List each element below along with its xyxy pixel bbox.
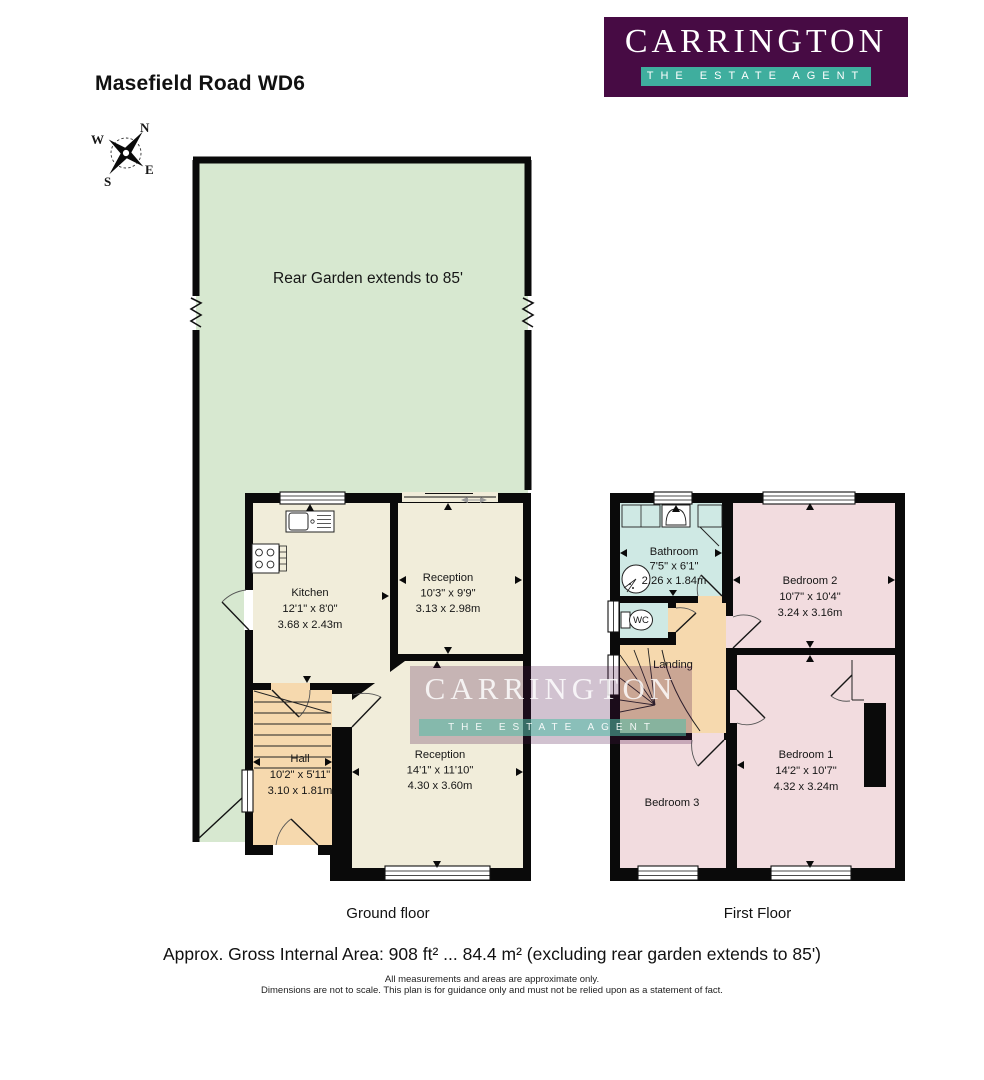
bathroom-size-metric: 2.26 x 1.84m bbox=[642, 575, 707, 587]
reception-front-label: Reception bbox=[415, 749, 465, 761]
window bbox=[608, 601, 619, 632]
bedroom3-label: Bedroom 3 bbox=[645, 797, 700, 809]
compass-east-label: E bbox=[145, 162, 154, 177]
floorplan-page: Masefield Road WD6 CARRINGTON THE ESTATE… bbox=[0, 0, 984, 1080]
basin-icon bbox=[662, 505, 690, 527]
chimney-breast bbox=[864, 703, 886, 787]
sink-icon bbox=[286, 511, 334, 532]
bathroom-label: Bathroom bbox=[650, 546, 699, 558]
window bbox=[280, 492, 345, 504]
window bbox=[638, 866, 698, 880]
compass-south-label: S bbox=[104, 174, 111, 189]
reception-rear-label: Reception bbox=[423, 572, 473, 584]
window bbox=[771, 866, 851, 880]
kitchen-label: Kitchen bbox=[291, 587, 328, 599]
bedroom2-size-metric: 3.24 x 3.16m bbox=[778, 607, 843, 619]
bedroom2-size-imperial: 10'7" x 10'4" bbox=[779, 591, 840, 603]
reception-front-size-metric: 4.30 x 3.60m bbox=[408, 780, 473, 792]
kitchen-size-imperial: 12'1" x 8'0" bbox=[282, 603, 337, 615]
watermark-name: CARRINGTON bbox=[410, 671, 692, 707]
window bbox=[242, 770, 253, 812]
patio-door bbox=[402, 492, 498, 503]
watermark-logo: CARRINGTON THE ESTATE AGENT bbox=[410, 666, 692, 744]
bedroom1-size-imperial: 14'2" x 10'7" bbox=[775, 765, 836, 777]
compass-icon: N W E S bbox=[91, 118, 160, 189]
compass-north-label: N bbox=[140, 120, 150, 135]
window bbox=[385, 866, 490, 880]
window bbox=[763, 492, 855, 504]
reception-rear-size-imperial: 10'3" x 9'9" bbox=[420, 588, 475, 600]
watermark-tagline: THE ESTATE AGENT bbox=[419, 719, 686, 736]
bathroom-size-imperial: 7'5" x 6'1" bbox=[650, 561, 699, 573]
window bbox=[654, 492, 692, 504]
bedroom2-label: Bedroom 2 bbox=[783, 575, 838, 587]
bedroom1-label: Bedroom 1 bbox=[779, 749, 834, 761]
hall-label: Hall bbox=[290, 753, 309, 765]
reception-front-size-imperial: 14'1" x 11'10" bbox=[407, 765, 474, 777]
compass-west-label: W bbox=[91, 132, 104, 147]
bedroom1-size-metric: 4.32 x 3.24m bbox=[774, 781, 839, 793]
wc-label: WC bbox=[633, 615, 649, 626]
floor-plan-drawing: N W E S Rear Garden extends to 85' bbox=[0, 0, 984, 1080]
reception-rear-size-metric: 3.13 x 2.98m bbox=[416, 603, 481, 615]
garden-label: Rear Garden extends to 85' bbox=[273, 270, 463, 287]
kitchen-size-metric: 3.68 x 2.43m bbox=[278, 619, 343, 631]
hall-size-imperial: 10'2" x 5'11" bbox=[270, 769, 331, 781]
hall-size-metric: 3.10 x 1.81m bbox=[268, 785, 333, 797]
